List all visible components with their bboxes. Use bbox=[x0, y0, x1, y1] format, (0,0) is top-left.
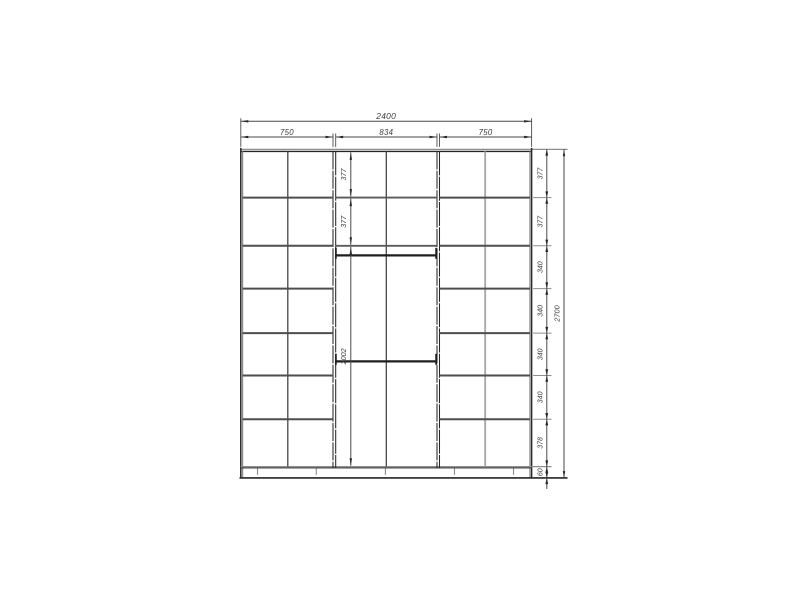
svg-text:340: 340 bbox=[537, 391, 544, 403]
svg-text:377: 377 bbox=[537, 215, 544, 228]
svg-text:2002: 2002 bbox=[339, 348, 348, 365]
svg-text:340: 340 bbox=[537, 305, 544, 317]
svg-text:2700: 2700 bbox=[553, 304, 562, 322]
svg-text:340: 340 bbox=[537, 348, 544, 360]
svg-text:834: 834 bbox=[379, 128, 393, 137]
svg-text:378: 378 bbox=[537, 437, 544, 449]
svg-text:60: 60 bbox=[537, 468, 544, 476]
svg-text:750: 750 bbox=[479, 128, 493, 137]
svg-text:377: 377 bbox=[537, 167, 544, 180]
svg-text:377: 377 bbox=[339, 215, 348, 228]
svg-text:377: 377 bbox=[339, 168, 348, 181]
svg-text:340: 340 bbox=[537, 261, 544, 273]
svg-text:750: 750 bbox=[280, 128, 294, 137]
svg-text:2400: 2400 bbox=[375, 111, 396, 121]
